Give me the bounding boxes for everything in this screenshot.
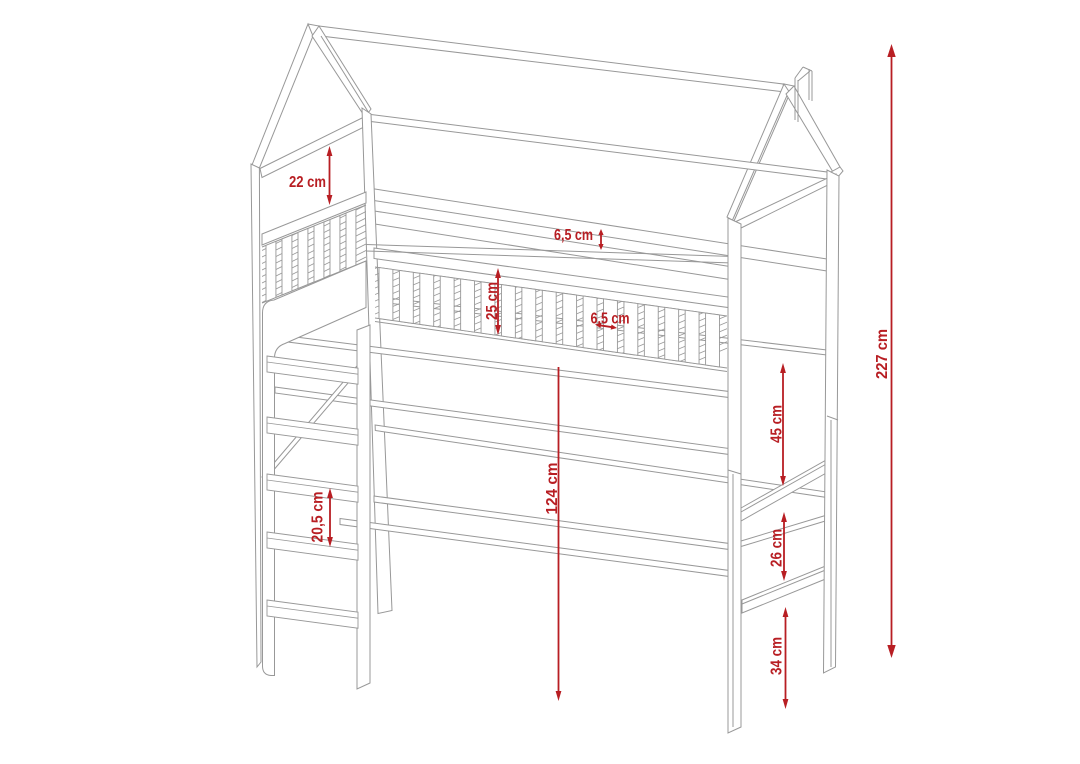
- svg-text:227 cm: 227 cm: [874, 329, 891, 379]
- svg-text:26 cm: 26 cm: [769, 529, 786, 567]
- svg-text:45 cm: 45 cm: [769, 405, 786, 443]
- svg-text:124 cm: 124 cm: [544, 463, 561, 515]
- svg-text:22 cm: 22 cm: [289, 174, 326, 191]
- svg-text:6,5 cm: 6,5 cm: [554, 227, 593, 244]
- svg-text:20,5 cm: 20,5 cm: [310, 492, 327, 543]
- svg-text:25 cm: 25 cm: [484, 282, 501, 320]
- svg-text:34 cm: 34 cm: [769, 637, 786, 675]
